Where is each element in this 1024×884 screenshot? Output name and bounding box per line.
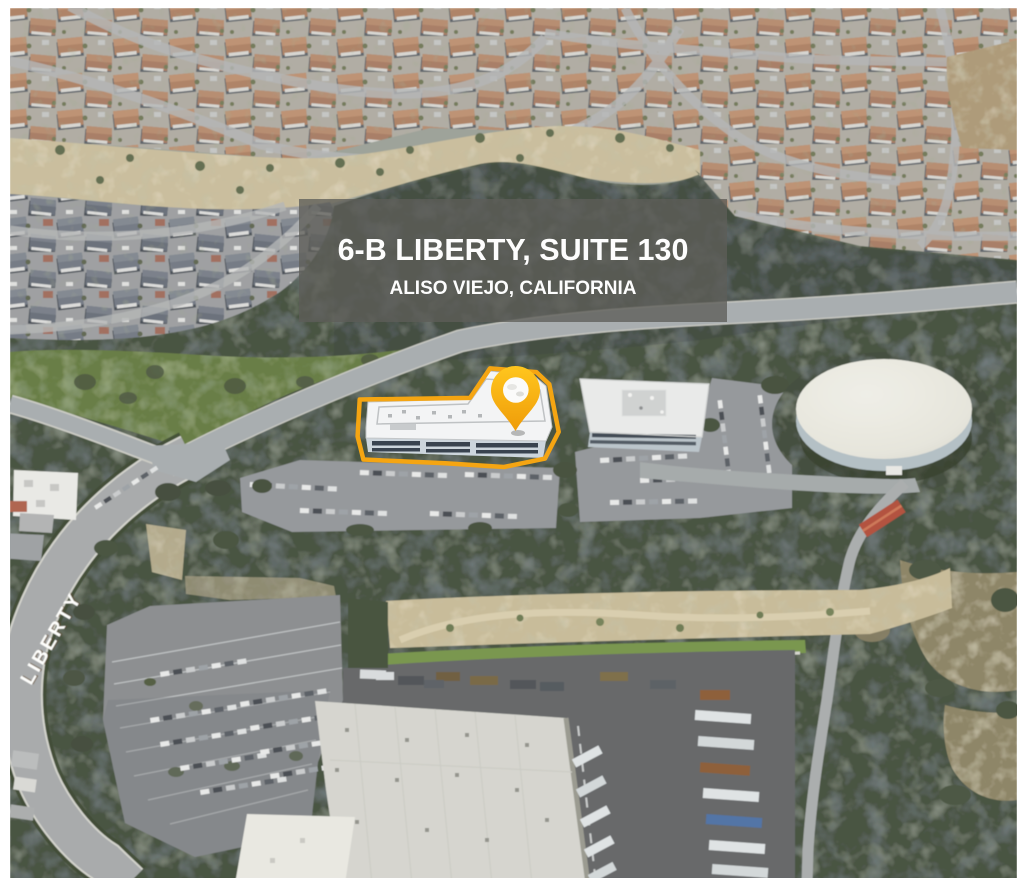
svg-text:6-B LIBERTY, SUITE 130: 6-B LIBERTY, SUITE 130 bbox=[338, 233, 689, 267]
svg-text:ALISO VIEJO, CALIFORNIA: ALISO VIEJO, CALIFORNIA bbox=[389, 278, 636, 299]
